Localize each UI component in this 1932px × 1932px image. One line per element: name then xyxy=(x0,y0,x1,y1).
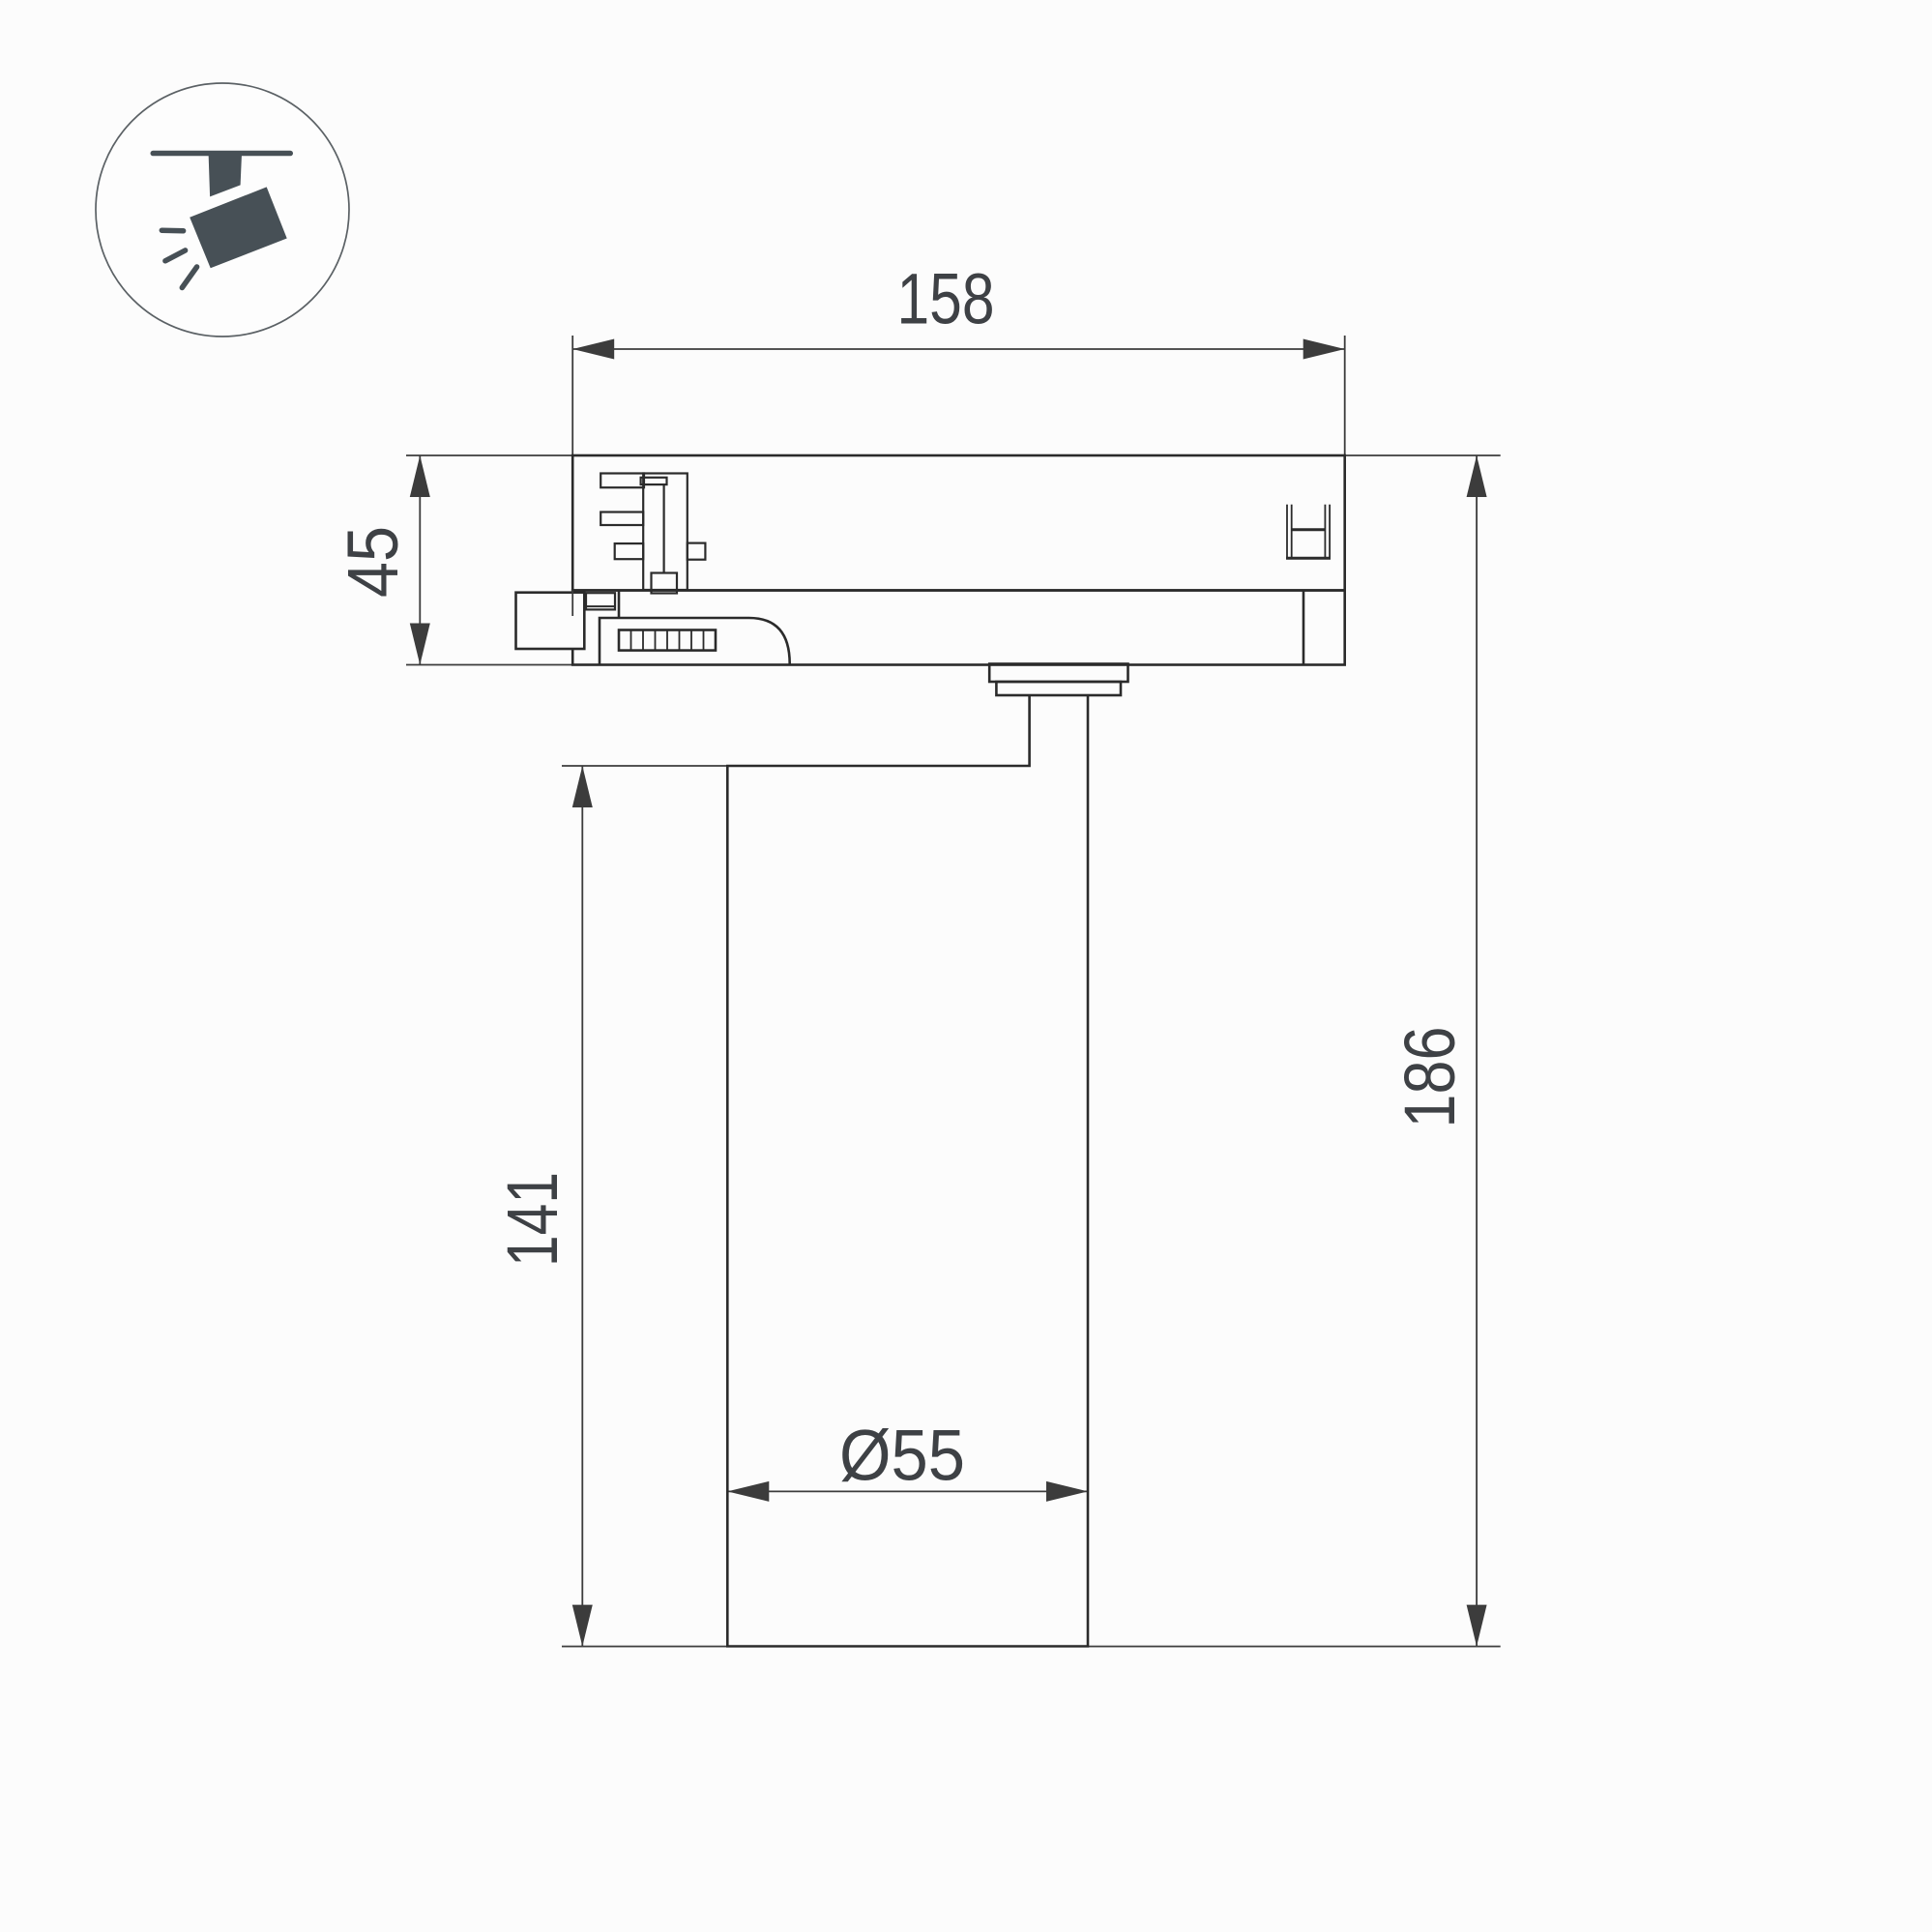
svg-text:186: 186 xyxy=(1390,1027,1470,1128)
svg-text:Ø55: Ø55 xyxy=(839,1416,965,1496)
svg-text:45: 45 xyxy=(333,526,413,598)
svg-text:158: 158 xyxy=(897,259,995,339)
svg-text:141: 141 xyxy=(492,1172,572,1267)
